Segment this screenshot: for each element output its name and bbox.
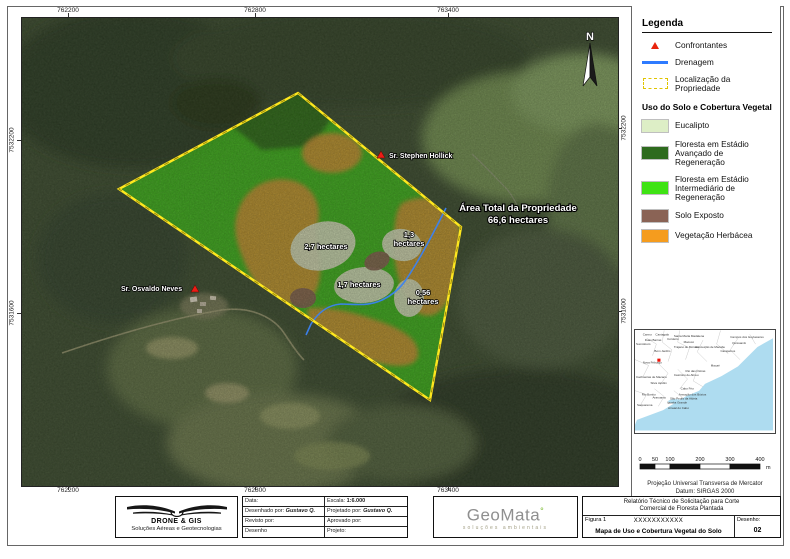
grid-tick — [448, 13, 449, 17]
projection-note: Projeção Universal Transversa de Mercato… — [634, 480, 776, 496]
legend-item-label: Floresta em Estádio Intermediário de Reg… — [675, 175, 772, 202]
legend-item-floresta-intermediario: Floresta em Estádio Intermediário de Reg… — [642, 175, 772, 202]
legend-item-confrontantes: Confrontantes — [642, 41, 772, 50]
confrontantes-triangle-icon — [651, 42, 659, 49]
inset-municipality-label: Araruama — [652, 395, 666, 399]
drawing-info-table: Data: Escala: 1:6.000 Desenhado por: Gus… — [242, 496, 408, 538]
cell-desenho: Desenho — [243, 527, 325, 537]
parcel-label-17: 1,7 hectares — [337, 280, 380, 289]
scale-bar: 0 50 100 200 300 400 m — [634, 455, 776, 482]
property-boundary-icon — [643, 78, 668, 89]
inset-map-svg: CarmoCantagaloSanta Maria MadalenaCampos… — [635, 330, 773, 431]
inset-municipality-label: Casimiro de Abreu — [674, 373, 699, 377]
scale-tick: 100 — [665, 457, 674, 463]
inset-municipality-label: Arraial do Cabo — [668, 406, 689, 410]
inset-municipality-label: Sumidouro — [636, 342, 651, 346]
inset-municipality-label: Bom Jardim — [654, 349, 671, 353]
map-frame: N Sr. Stephen Hollick Sr. Osvaldo Neves … — [21, 17, 619, 487]
solo-exposto-swatch — [642, 210, 668, 222]
inset-municipality-label: Cantagalo — [655, 332, 669, 336]
north-label: N — [586, 31, 594, 43]
drone-gis-name: DRONE & GIS — [151, 518, 202, 525]
inset-municipality-label: Quissamã — [732, 341, 746, 345]
inset-municipality-label: Macuco — [684, 340, 695, 344]
neighbor-label-osvaldo: Sr. Osvaldo Neves — [121, 286, 182, 293]
legend-item-label: Solo Exposto — [675, 211, 724, 220]
drainage-line-icon — [642, 61, 668, 63]
inset-municipality-label: Macaé — [711, 363, 720, 367]
neighbor-label-stephen: Sr. Stephen Hollick — [389, 153, 453, 160]
drone-gis-tagline: Soluções Aéreas e Geotecnologias — [131, 526, 221, 532]
inset-municipality-label: Silva Jardim — [651, 381, 668, 385]
scale-tick: 0 — [638, 457, 641, 463]
grid-tick — [255, 486, 256, 490]
legend-item-label: Eucalipto — [675, 121, 709, 130]
inset-municipality-label: Saquarema — [637, 403, 653, 407]
legend-item-label: Vegetação Herbácea — [675, 231, 753, 240]
area-total-line1: Área Total da Propriedade — [459, 203, 577, 214]
legend-item-eucalipto: Eucalipto — [642, 120, 772, 132]
legend-item-vegetacao-herbacea: Vegetação Herbácea — [642, 230, 772, 242]
cell-desenhado: Desenhado por: Gustavo Q. — [243, 507, 325, 517]
figure-cell: Figura 1 XXXXXXXXXXX Mapa de Uso e Cober… — [583, 516, 735, 537]
parcel-label-27: 2,7 hectares — [304, 242, 347, 251]
grid-tick — [17, 140, 21, 141]
scale-tick: 300 — [725, 457, 734, 463]
geomata-degree-icon: ° — [540, 506, 544, 516]
grid-tick — [448, 486, 449, 490]
inset-municipality-label: Nova Friburgo — [643, 360, 662, 364]
legend-item-label: Confrontantes — [675, 41, 727, 50]
vegetacao-herbacea-swatch — [642, 230, 668, 242]
grid-tick — [68, 486, 69, 490]
geomata-tagline: soluções ambientais — [463, 525, 548, 531]
legend-item-drenagem: Drenagem — [642, 58, 772, 67]
inset-municipality-label: Iguaba Grande — [667, 400, 687, 404]
report-title: Relatório Técnico de Solicitação para Co… — [583, 497, 780, 516]
inset-municipality-label: Cabo Frio — [681, 387, 695, 391]
legend: Legenda Confrontantes Drenagem Localizaç… — [632, 6, 780, 242]
inset-municipality-label: Carapebus — [721, 349, 736, 353]
legend-item-localizacao: Localização da Propriedade — [642, 75, 772, 93]
geomata-logo: GeoMata° — [467, 503, 545, 524]
scale-tick: 50 — [652, 457, 658, 463]
sheet-number-label: Desenho: — [737, 517, 760, 523]
landuse-title: Uso do Solo e Cobertura Vegetal — [642, 102, 772, 112]
eucalipto-swatch — [642, 120, 668, 132]
location-inset-map: CarmoCantagaloSanta Maria MadalenaCampos… — [634, 329, 776, 434]
legend-title: Legenda — [642, 18, 772, 33]
report-title-box: Relatório Técnico de Solicitação para Co… — [582, 496, 781, 538]
floresta-intermediario-swatch — [642, 182, 668, 194]
grid-tick — [255, 13, 256, 17]
grid-tick — [618, 311, 622, 312]
grid-tick — [618, 128, 622, 129]
report-title-line2: Comercial de Floresta Plantada — [583, 506, 780, 514]
scale-unit: m — [766, 465, 771, 471]
cell-projetado: Projetado por: Gustavo Q. — [325, 507, 407, 517]
right-panel: Legenda Confrontantes Drenagem Localizaç… — [631, 6, 781, 497]
satellite-map: N Sr. Stephen Hollick Sr. Osvaldo Neves … — [22, 18, 618, 486]
projection-line2: Datum: SIRGAS 2000 — [634, 488, 776, 496]
scale-tick: 400 — [755, 457, 764, 463]
drone-gis-wings-logo-icon — [125, 503, 229, 517]
grid-tick — [17, 313, 21, 314]
map-report-page: { "map": { "top_coords": ["762200", "762… — [0, 0, 790, 559]
scale-tick: 200 — [695, 457, 704, 463]
inset-municipality-label: Cachoeiras de Macacu — [636, 375, 667, 379]
cell-projeto: Projeto: — [325, 527, 407, 537]
geomata-box: GeoMata° soluções ambientais — [433, 496, 578, 538]
parcel-label-13b: hectares — [394, 239, 425, 248]
inset-municipality-label: Cordeiro — [667, 337, 679, 341]
legend-item-floresta-avancado: Floresta em Estádio Avançado de Regenera… — [642, 140, 772, 167]
cell-data: Data: — [243, 497, 325, 507]
cell-aprovado: Aprovado por: — [325, 517, 407, 527]
map-title: Mapa de Uso e Cobertura Vegetal do Solo — [583, 528, 734, 535]
legend-item-label: Drenagem — [675, 58, 714, 67]
floresta-avancado-swatch — [642, 147, 668, 159]
area-total-line2: 66,6 hectares — [488, 215, 548, 226]
cell-revisto: Revisto por: — [243, 517, 325, 527]
sheet-number-cell: Desenho: 02 — [735, 516, 780, 537]
coord-left-1: 7532200 — [9, 127, 16, 152]
parcel-label-056a: 0,56 — [416, 288, 431, 297]
drone-gis-box: DRONE & GIS Soluções Aéreas e Geotecnolo… — [115, 496, 238, 538]
texture-light — [22, 18, 618, 486]
coord-left-2: 7531600 — [9, 300, 16, 325]
inset-municipality-label: Campos dos Goytacazes — [730, 335, 764, 339]
sheet-number-value: 02 — [735, 527, 780, 534]
projection-line1: Projeção Universal Transversa de Mercato… — [634, 480, 776, 488]
figure-code: XXXXXXXXXXX — [583, 518, 734, 524]
legend-item-label: Floresta em Estádio Avançado de Regenera… — [675, 140, 772, 167]
legend-item-solo-exposto: Solo Exposto — [642, 210, 772, 222]
report-title-line1: Relatório Técnico de Solicitação para Co… — [583, 499, 780, 507]
parcel-label-056b: hectares — [408, 297, 439, 306]
parcel-label-13a: 1,3 — [404, 230, 414, 239]
cell-escala: Escala: 1:6.000 — [325, 497, 407, 507]
legend-item-label: Localização da Propriedade — [675, 75, 772, 93]
grid-tick — [68, 13, 69, 17]
inset-municipality-label: Carmo — [643, 332, 652, 336]
